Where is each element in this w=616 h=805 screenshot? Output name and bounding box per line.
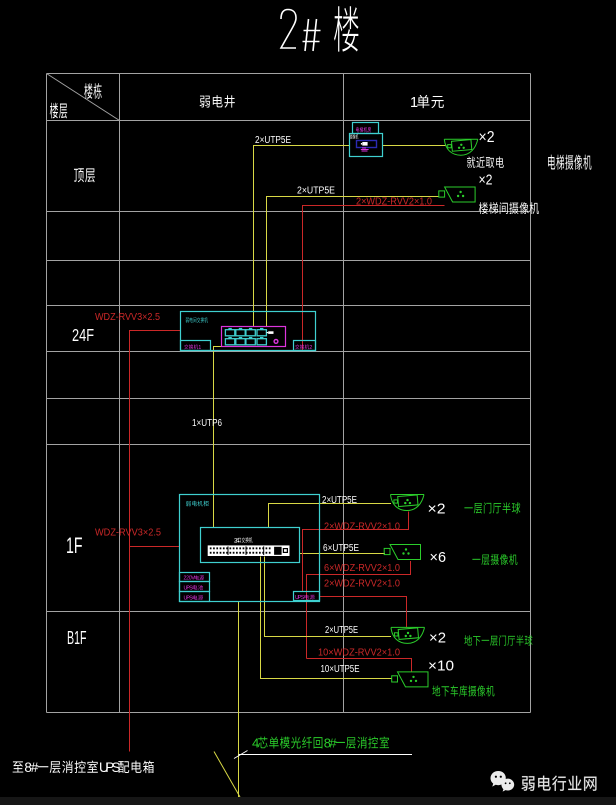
svg-text:10×WDZ-RVV2×1.0: 10×WDZ-RVV2×1.0: [318, 648, 400, 659]
svg-text:2×UTP5E: 2×UTP5E: [297, 186, 335, 197]
svg-text:2: 2: [309, 345, 312, 351]
svg-text:×6: ×6: [430, 549, 447, 566]
svg-text:S: S: [189, 596, 193, 602]
svg-text:×10: ×10: [428, 658, 454, 675]
svg-text:1: 1: [410, 95, 418, 111]
svg-text:×2: ×2: [429, 630, 446, 647]
svg-text:#: #: [329, 736, 337, 751]
svg-text:#: #: [31, 760, 39, 775]
svg-text:2×UTP5E: 2×UTP5E: [325, 625, 358, 636]
svg-text:2×UTP5E: 2×UTP5E: [255, 135, 291, 146]
svg-text:2×WDZ-RVV2×1.0: 2×WDZ-RVV2×1.0: [324, 522, 400, 533]
svg-text:S: S: [301, 595, 305, 601]
svg-text:4: 4: [236, 538, 240, 544]
svg-text:2×WDZ-RVV2×1.0: 2×WDZ-RVV2×1.0: [324, 579, 400, 590]
svg-text:×2: ×2: [479, 129, 495, 146]
svg-text:4: 4: [252, 736, 259, 751]
svg-text:×2: ×2: [479, 172, 493, 189]
svg-text:2×UTP5E: 2×UTP5E: [322, 495, 357, 506]
svg-text:6×UTP5E: 6×UTP5E: [323, 543, 359, 554]
svg-text:2×WDZ-RVV2×1.0: 2×WDZ-RVV2×1.0: [356, 197, 432, 208]
svg-text:B1F: B1F: [67, 628, 87, 648]
svg-text:1: 1: [198, 345, 201, 351]
svg-text:10×UTP5E: 10×UTP5E: [321, 664, 360, 675]
svg-text:1F: 1F: [66, 533, 83, 558]
svg-text:柜: 柜: [203, 500, 209, 508]
svg-text:24F: 24F: [72, 325, 94, 345]
svg-text:S: S: [189, 585, 193, 591]
svg-text:WDZ-RVV3×2.5: WDZ-RVV3×2.5: [95, 311, 160, 323]
svg-text:1×UTP6: 1×UTP6: [192, 417, 222, 429]
svg-text:WDZ-RVV3×2.5: WDZ-RVV3×2.5: [95, 527, 161, 539]
svg-text:6×WDZ-RVV2×1.0: 6×WDZ-RVV2×1.0: [324, 563, 400, 574]
svg-text:×2: ×2: [428, 501, 446, 518]
